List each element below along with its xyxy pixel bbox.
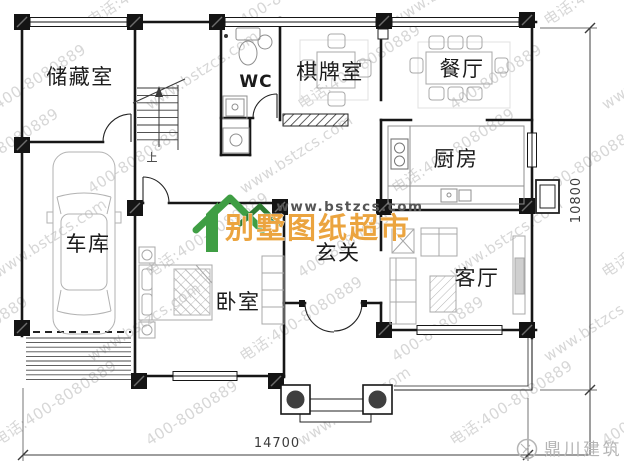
door-bedroom xyxy=(143,177,169,203)
floor-plan-canvas: www.bstzcs.com电话:400-8080889400-8080889w… xyxy=(0,0,624,469)
sofa xyxy=(390,258,416,324)
coffee-table xyxy=(430,276,456,312)
flue-box xyxy=(536,180,559,213)
brand-name-text: 别墅图纸超市 xyxy=(225,211,411,245)
svg-text:www.bstzcs.com: www.bstzcs.com xyxy=(598,27,624,114)
svg-text:400-8080889: 400-8080889 xyxy=(598,376,624,449)
site-logo: www.bstzcs.com 别墅图纸超市 xyxy=(196,198,424,252)
floor-drain xyxy=(224,34,228,38)
door-wc xyxy=(253,94,277,118)
window-storage xyxy=(30,18,127,27)
svg-text:www.bstzcs.com: www.bstzcs.com xyxy=(540,279,624,366)
blueprint-image: www.bstzcs.com电话:400-8080889400-8080889w… xyxy=(0,0,624,469)
svg-text:400-8080889: 400-8080889 xyxy=(142,376,241,449)
svg-text:电话:400-8080889: 电话:400-8080889 xyxy=(236,272,366,365)
window-dining xyxy=(392,18,519,27)
entry-porch xyxy=(281,385,392,422)
loveseat xyxy=(421,228,457,256)
svg-text:电话:400-8080889: 电话:400-8080889 xyxy=(446,356,576,449)
room-label-bedroom: 卧室 xyxy=(216,290,261,314)
porch-column xyxy=(287,391,305,409)
stair-up-label: 上 xyxy=(147,151,158,164)
builder-logo: 鼎川建筑 xyxy=(518,440,623,461)
dimension-right: 10800 xyxy=(569,177,584,223)
dimension-bottom: 14700 xyxy=(254,436,300,451)
porch-column xyxy=(369,391,387,409)
hatched-wall xyxy=(283,114,348,126)
room-label-kitchen: 厨房 xyxy=(434,147,479,171)
window-kitchen xyxy=(528,133,537,167)
room-label-wc: WC xyxy=(239,72,272,92)
room-label-storage: 储藏室 xyxy=(46,65,114,89)
window-wc-chess xyxy=(225,18,376,27)
svg-text:电话:400-8080889: 电话:400-8080889 xyxy=(540,0,624,29)
room-label-garage: 车库 xyxy=(66,232,111,256)
svg-text:电话:400-8080889: 电话:400-8080889 xyxy=(598,188,624,281)
window-bedroom xyxy=(173,372,237,381)
builder-name-text: 鼎川建筑 xyxy=(544,440,622,460)
stove xyxy=(391,139,408,169)
tv-cabinet xyxy=(513,236,525,314)
window-living xyxy=(417,326,502,335)
laundry-sink xyxy=(223,128,249,153)
room-label-dining: 餐厅 xyxy=(440,57,485,81)
room-label-living: 客厅 xyxy=(455,266,500,290)
kitchen-sink xyxy=(441,189,471,202)
blanket xyxy=(174,269,210,315)
porch-step xyxy=(310,399,363,411)
room-label-chess: 棋牌室 xyxy=(296,60,364,84)
door-storage-garage xyxy=(103,114,131,142)
